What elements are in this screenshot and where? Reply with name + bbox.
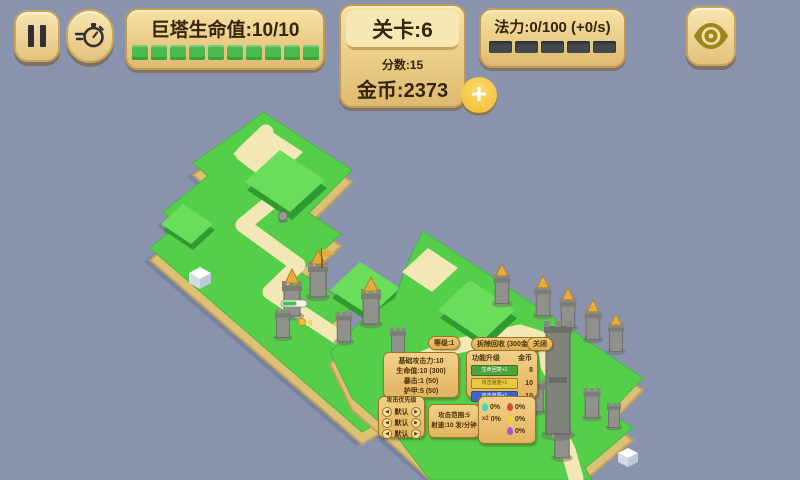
ice-icon	[482, 403, 488, 411]
hp-segment	[265, 45, 281, 60]
right-arrow-icon: ▶	[414, 421, 418, 426]
priority-title: 攻击优先级	[379, 397, 424, 406]
hp-segment	[189, 45, 205, 60]
stat-line: 基础攻击力:10	[384, 357, 458, 367]
hp-segment	[208, 45, 224, 60]
priority-panel: 攻击优先级 ◀ 默认 ▶ ◀ 默认 ▶ ◀ 默认 ▶	[378, 396, 425, 438]
stat-line: 暴击:1 (50)	[384, 377, 458, 387]
effect-value: 0%	[515, 428, 525, 435]
left-arrow-icon: ◀	[385, 410, 389, 415]
range-line: 射速:10 发/分钟	[429, 421, 479, 431]
left-arrow-icon: ◀	[385, 421, 389, 426]
mana-segment	[593, 41, 616, 53]
enemy-unit	[278, 212, 288, 224]
tower-hp-label: 巨塔生命值:10/10	[127, 15, 323, 42]
priority-prev-button[interactable]: ◀	[382, 429, 392, 439]
upgrade-cost: 10	[521, 380, 533, 387]
lightning-icon	[507, 415, 513, 423]
upgrade-button[interactable]: 生命回复+1	[471, 365, 518, 376]
effect-value: 0%	[491, 416, 501, 423]
fire-icon	[507, 403, 513, 411]
mana-panel: 法力:0/100 (+0/s)	[479, 8, 626, 68]
effect-value: 0%	[515, 404, 525, 411]
effects-panel: 0% x2 0% 0% 0% 0%	[478, 396, 536, 444]
priority-next-button[interactable]: ▶	[411, 407, 421, 417]
poison-icon	[507, 427, 513, 435]
close-button[interactable]: 关闭	[527, 337, 553, 351]
upgrades-title: 功能升级	[472, 353, 500, 363]
mana-segments	[481, 41, 624, 53]
effect-item: 0%	[507, 401, 532, 413]
priority-value: 默认	[395, 418, 409, 428]
range-panel: 攻击范围:5 射速:10 发/分钟	[428, 404, 480, 438]
score-label: 分数:15	[341, 56, 464, 73]
tower-health-bar	[281, 300, 307, 307]
view-button[interactable]	[686, 6, 736, 66]
right-arrow-icon: ▶	[414, 432, 418, 437]
left-arrow-icon: ◀	[385, 432, 389, 437]
stone-tower[interactable]	[334, 312, 354, 346]
hp-segment	[246, 45, 262, 60]
range-line: 攻击范围:5	[429, 411, 479, 421]
mana-segment	[489, 41, 512, 53]
stopwatch-icon	[74, 20, 106, 52]
mana-segment	[541, 41, 564, 53]
stone-tower[interactable]	[273, 310, 292, 342]
game-screen: { "hud": { "tower_hp_label": "巨塔生命值:10/1…	[0, 0, 800, 480]
right-arrow-icon: ▶	[414, 410, 418, 415]
mana-label: 法力:0/100 (+0/s)	[481, 16, 624, 37]
stat-line: 生命值:10 (300)	[384, 367, 458, 377]
gold-label: 金币:2373	[341, 74, 464, 103]
stone-tower[interactable]	[582, 388, 602, 422]
hp-segment	[170, 45, 186, 60]
hp-segment	[303, 45, 319, 60]
hp-segment	[132, 45, 148, 60]
speed-button[interactable]	[66, 9, 114, 63]
effect-item: x2 0%	[482, 413, 507, 425]
floating-gold-value: 6	[308, 319, 313, 328]
effect-value: 0%	[490, 404, 500, 411]
tower-hp-segments	[127, 45, 323, 60]
eye-icon	[691, 16, 731, 56]
crit-icon: x2	[482, 416, 489, 422]
level-label: 关卡:6	[372, 14, 433, 44]
pause-button[interactable]	[14, 10, 60, 62]
mana-segment	[515, 41, 538, 53]
add-gold-button[interactable]: +	[461, 77, 497, 113]
tower-stats-panel: 基础攻击力:10 生命值:10 (300) 暴击:1 (50) 护甲:5 (50…	[383, 352, 459, 398]
effect-value: 0%	[515, 416, 525, 423]
plus-icon: +	[471, 80, 487, 108]
upgrade-button[interactable]: 攻击速度+1	[471, 378, 518, 389]
tower-hp-panel: 巨塔生命值:10/10	[125, 8, 325, 70]
priority-next-button[interactable]: ▶	[411, 418, 421, 428]
effect-item: 0%	[507, 413, 532, 425]
priority-value: 默认	[395, 407, 409, 417]
hp-segment	[227, 45, 243, 60]
upgrade-cost: 8	[521, 367, 533, 374]
level-box: 关卡:6	[346, 10, 459, 50]
level-panel: 关卡:6 分数:15 金币:2373	[339, 4, 466, 108]
priority-prev-button[interactable]: ◀	[382, 407, 392, 417]
upgrades-panel: 功能升级 金币 生命回复+1 8 攻击速度+1 10 攻击范围+1 10	[466, 350, 538, 398]
hp-segment	[284, 45, 300, 60]
effect-item: 0%	[507, 425, 532, 437]
tower-level-pill: 等级:1	[428, 336, 460, 350]
priority-next-button[interactable]: ▶	[411, 429, 421, 439]
pause-icon	[28, 25, 46, 47]
stone-tower[interactable]	[606, 403, 623, 431]
priority-prev-button[interactable]: ◀	[382, 418, 392, 428]
mana-segment	[567, 41, 590, 53]
hp-segment	[151, 45, 167, 60]
upgrades-cost-header: 金币	[518, 353, 532, 363]
effect-item: 0%	[482, 401, 507, 413]
priority-value: 默认	[395, 429, 409, 439]
